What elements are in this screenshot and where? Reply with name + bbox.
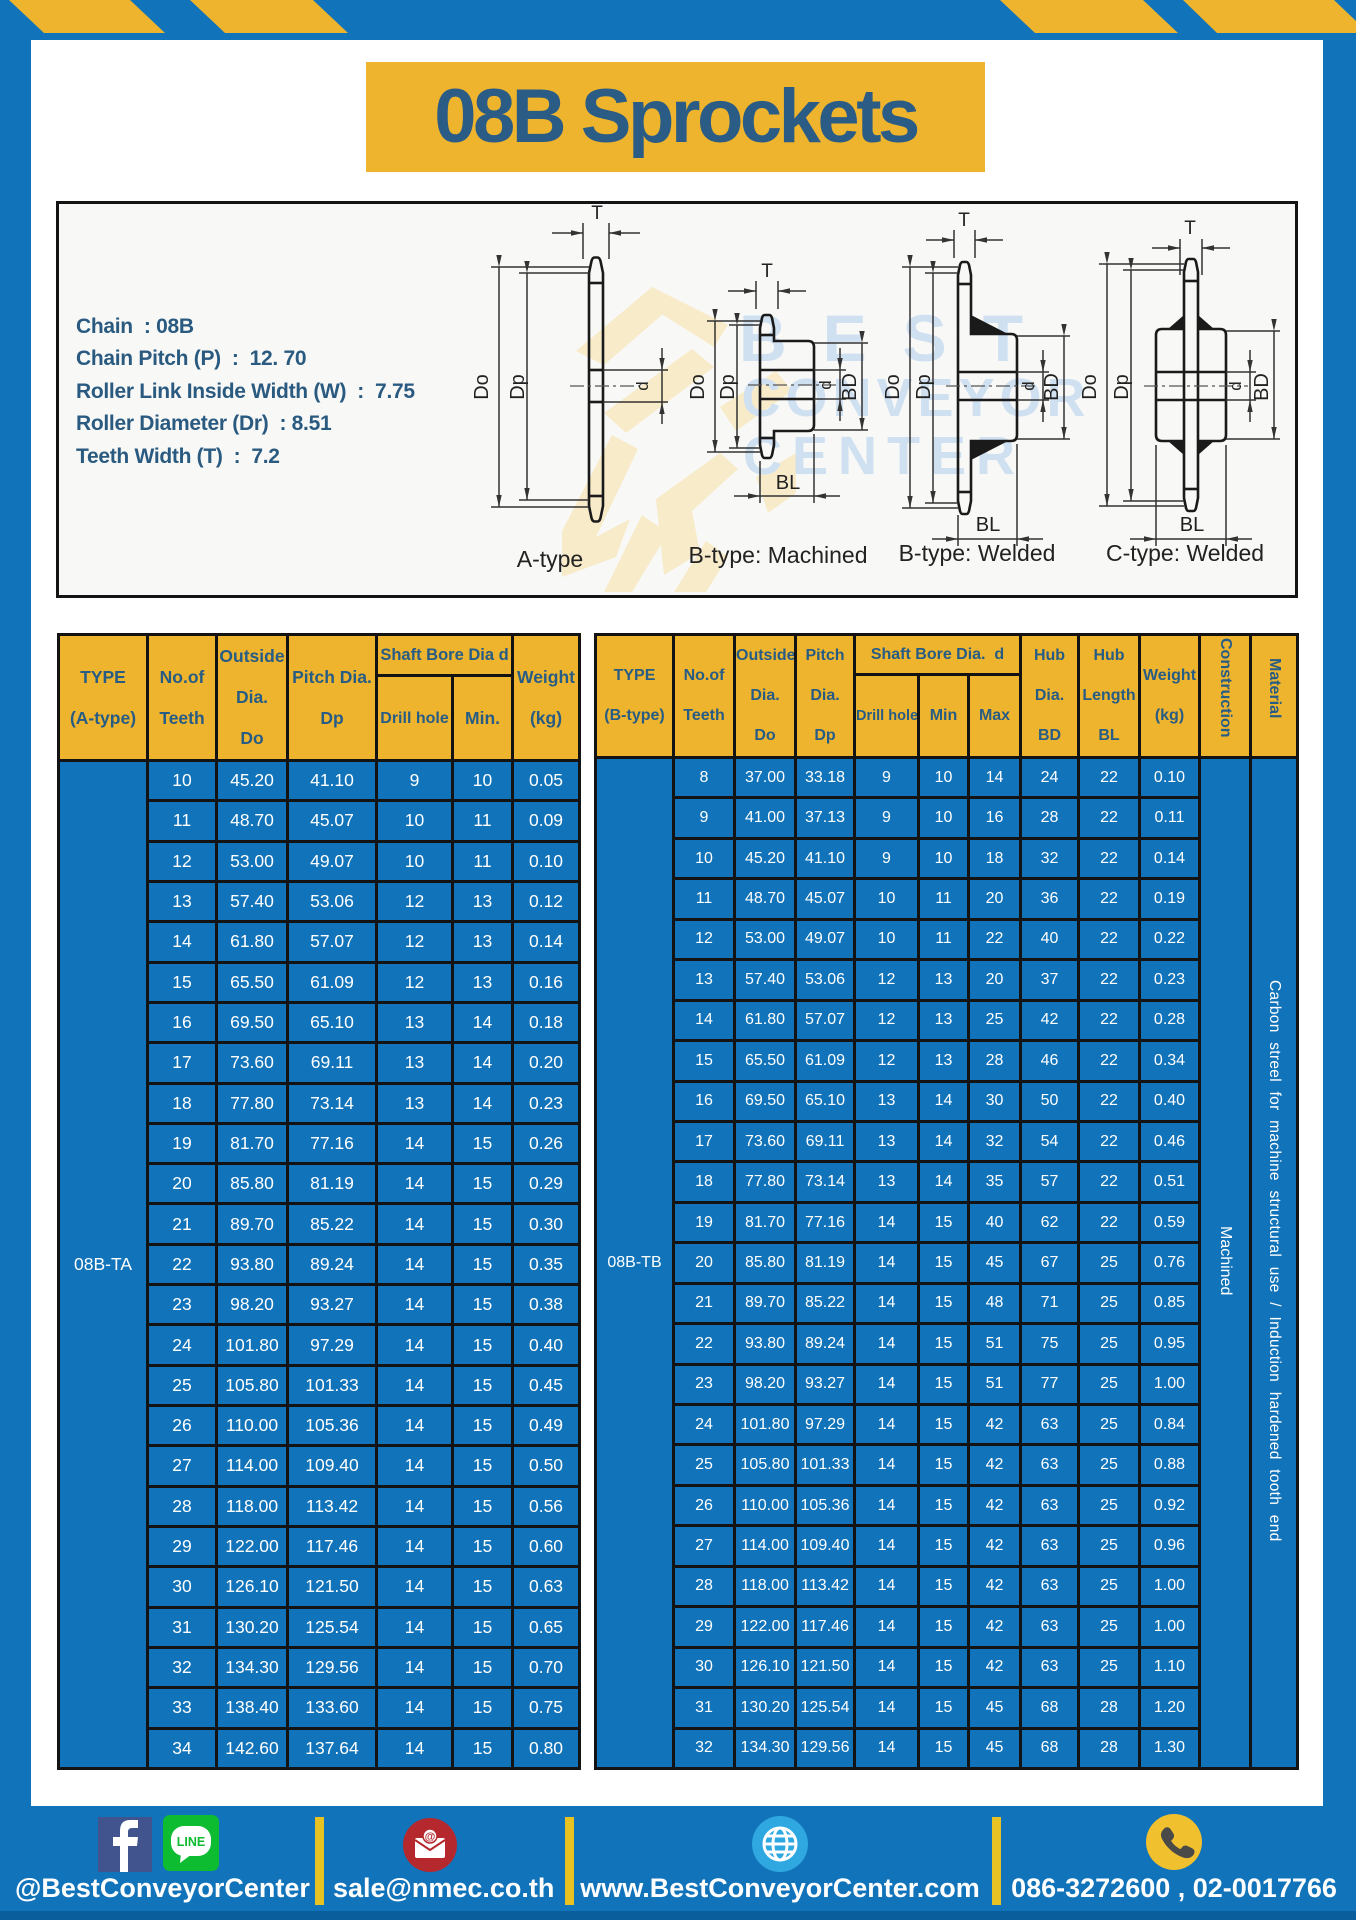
svg-text:LINE: LINE (177, 1835, 205, 1849)
svg-text:C-type: Welded: C-type: Welded (1106, 540, 1264, 566)
svg-text:d: d (816, 380, 835, 389)
svg-text:BD: BD (1041, 373, 1063, 401)
svg-text:Do: Do (687, 374, 709, 400)
svg-text:d: d (1019, 381, 1038, 390)
svg-text:BL: BL (1180, 514, 1204, 536)
svg-text:BL: BL (776, 472, 800, 494)
svg-text:d: d (633, 381, 652, 390)
svg-text:B-type: Welded: B-type: Welded (899, 540, 1056, 566)
svg-text:d: d (1226, 381, 1245, 390)
svg-text:Do: Do (1079, 374, 1101, 400)
svg-text:T: T (1184, 218, 1196, 239)
svg-text:T: T (591, 203, 603, 224)
svg-text:BD: BD (839, 373, 861, 401)
svg-text:@: @ (425, 1831, 436, 1843)
svg-text:Dp: Dp (717, 374, 739, 400)
svg-text:Do: Do (882, 374, 904, 400)
svg-text:BD: BD (1251, 373, 1273, 401)
svg-text:BL: BL (976, 514, 1000, 536)
svg-text:B-type: Machined: B-type: Machined (689, 542, 868, 568)
svg-text:Dp: Dp (1111, 374, 1133, 400)
svg-text:BEST: BEST (739, 301, 1059, 375)
svg-text:Dp: Dp (913, 374, 935, 400)
svg-text:T: T (761, 261, 773, 282)
svg-text:T: T (958, 210, 970, 231)
svg-text:A-type: A-type (517, 546, 583, 572)
